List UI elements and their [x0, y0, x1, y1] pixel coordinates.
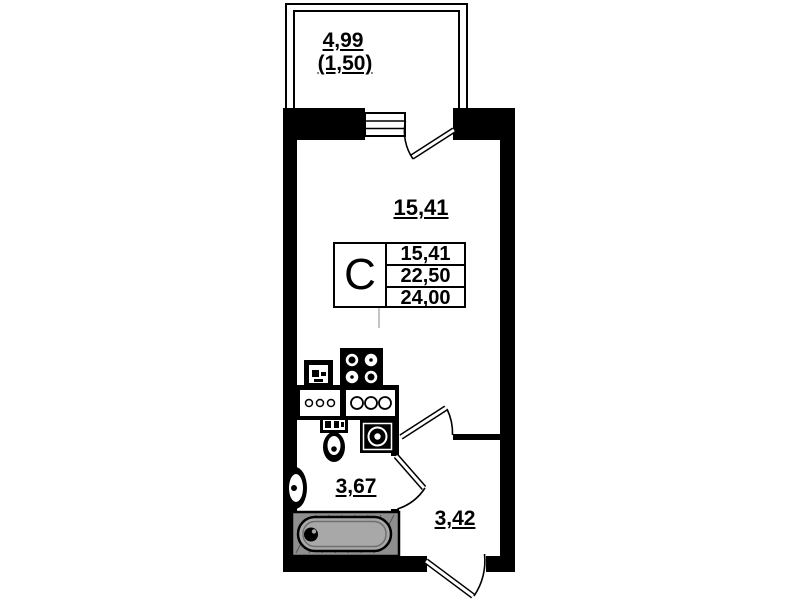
bathroom-area-label: 3,67 [336, 476, 377, 498]
floor-plan: 4,99 (1,50) 15,41 3,67 3,42 C 15,41 22,5… [0, 0, 799, 600]
unit-stamp: C 15,41 22,50 24,00 [333, 242, 466, 308]
balcony-door [404, 121, 454, 159]
wall-right [500, 140, 515, 572]
wall-bottom-left [283, 556, 427, 572]
wall-bottom-right [486, 556, 515, 572]
bathroom-door [396, 456, 425, 509]
balcony-outline-outer [286, 4, 467, 108]
vent-duct-right-icon [345, 389, 396, 417]
unit-areas-column: 15,41 22,50 24,00 [387, 244, 464, 306]
living-area-value: 15,41 [387, 244, 464, 266]
stove-icon [340, 348, 383, 388]
washbasin-icon [283, 467, 307, 509]
total-area-value: 24,00 [387, 288, 464, 308]
living-room-area-label: 15,41 [393, 196, 448, 219]
walls [283, 108, 515, 572]
toilet-icon [320, 417, 348, 462]
wall-top-right [453, 108, 515, 140]
balcony-area-label: 4,99 [323, 30, 364, 52]
apartment-area-value: 22,50 [387, 266, 464, 288]
room-hallway-door [401, 408, 453, 437]
vent-duct-left-icon [299, 389, 341, 417]
window-icon [365, 113, 405, 136]
hallway-area-label: 3,42 [435, 508, 476, 530]
balcony-coef-label: (1,50) [318, 53, 373, 75]
washing-machine-icon [360, 420, 395, 453]
kitchen-sink-icon [304, 360, 333, 388]
unit-type-label: C [335, 244, 387, 306]
wall-room-hall [453, 434, 500, 440]
entry-door [426, 554, 485, 596]
bathtub-icon [292, 512, 399, 556]
